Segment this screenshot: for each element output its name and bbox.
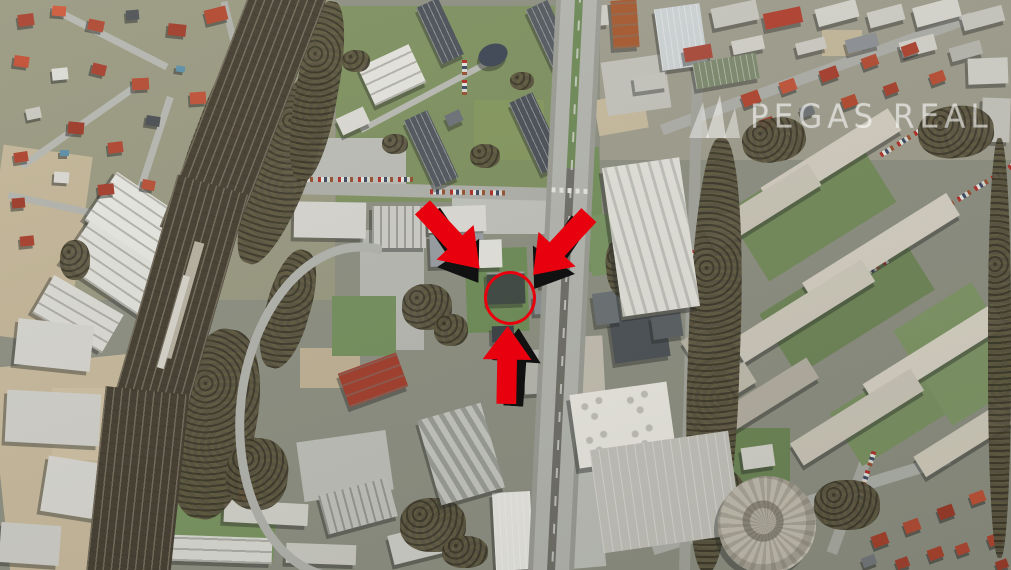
circular-building: [718, 476, 816, 570]
highlight-circle: [484, 271, 536, 325]
arrow-bottom: [480, 326, 533, 405]
satellite-image: PEGAS REAL: [0, 0, 1011, 570]
roof-spokes: [718, 476, 816, 570]
railway-tracks: [85, 386, 189, 570]
